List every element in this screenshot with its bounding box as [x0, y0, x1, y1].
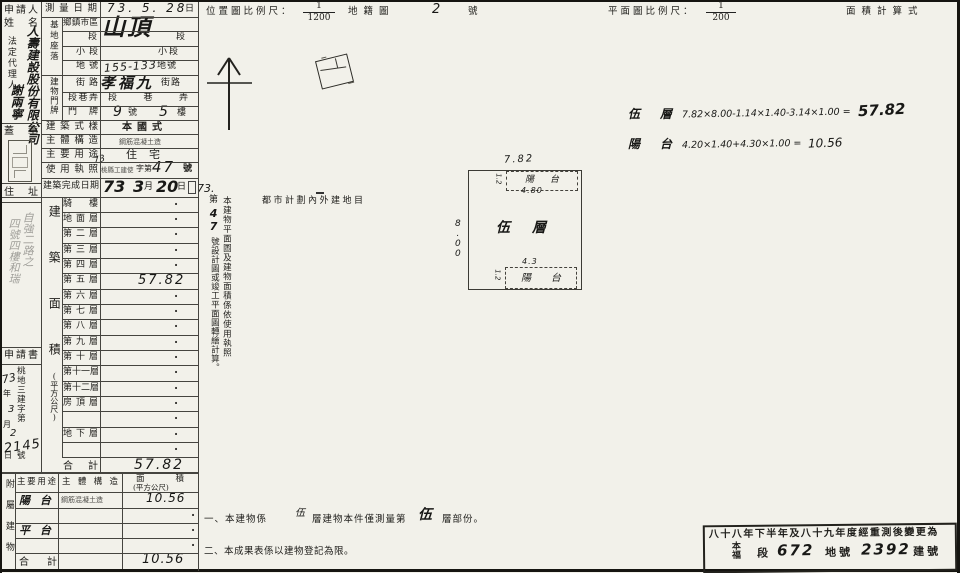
license-mid: 字第	[136, 165, 152, 174]
section-label: 段	[88, 33, 97, 43]
floor-row-value: ·	[100, 260, 224, 272]
lane-label: 段巷弄	[68, 94, 98, 104]
plan-balcony-bottom-label: 陽台	[521, 273, 561, 284]
map-note-col-right: 本建物平面圖及建物面積係依使用執照	[221, 196, 230, 398]
door-label: 門牌	[68, 108, 98, 118]
floor-row-value: ·	[100, 398, 224, 410]
grid-line	[62, 381, 198, 382]
grid-line	[62, 457, 198, 458]
floor-row-value: ·	[100, 383, 224, 395]
attached-total-area: 10.56	[142, 553, 184, 567]
floor-row-value: ·	[100, 321, 224, 333]
plan-balcony-bottom: 陽台	[505, 267, 577, 289]
door-number-unit: 號	[128, 109, 137, 119]
note1-pre: 一、本建物係	[204, 515, 267, 525]
section-value-handwriting: 山頂	[102, 16, 152, 41]
applicant-company-handwriting: 人壽建設股份有限公司	[25, 25, 38, 129]
grid-line	[15, 553, 198, 554]
location-scale-label: 位置圖比例尺：	[206, 7, 294, 17]
grid-line	[41, 134, 198, 135]
stamp-line1: 八十八年下半年及八十九年度經重測後變更為	[709, 527, 939, 540]
stamp-building-unit: 建號	[913, 546, 941, 558]
plan-balcony-top-height: 1.2	[494, 173, 502, 184]
grid-line	[58, 473, 59, 569]
attached-row-usage: 陽台	[19, 495, 51, 507]
attached-side-label: 附屬建物	[3, 479, 13, 569]
grid-line	[62, 411, 198, 412]
grid-line	[62, 335, 198, 336]
zoning-mark	[316, 192, 324, 194]
grid-line	[2, 364, 41, 365]
resurvey-stamp-box: 八十八年下半年及八十九年度經重測後變更為 本福 段 672 地號 2392 建號	[703, 523, 957, 573]
lot-suffix: 地號	[157, 62, 177, 72]
survey-date-suffix: 日	[185, 5, 194, 15]
floor-row-label: 第二層	[63, 230, 98, 240]
license-suffix: 號	[183, 165, 192, 175]
grid-line	[62, 243, 198, 244]
cadastral-map-no-suffix: 號	[468, 7, 478, 17]
attached-total-label: 合計	[19, 557, 57, 568]
grid-line	[198, 2, 199, 571]
subsection-label: 小段	[76, 48, 98, 58]
grid-line	[41, 75, 198, 76]
application-month-hand: 3	[8, 404, 14, 415]
agent-label: 法定代理人	[5, 36, 15, 91]
grid-line	[62, 442, 198, 443]
plan-scale-denominator: 200	[706, 13, 736, 23]
zoning-text: 都市計劃內外建地目	[262, 197, 366, 207]
grid-line	[62, 289, 198, 290]
grid-line	[15, 492, 198, 493]
floor-row-value: ·	[100, 214, 224, 226]
grid-line	[62, 197, 63, 457]
floor-row-label: 地面層	[63, 215, 98, 225]
address-handwriting-col1: 自強二路之	[21, 212, 33, 332]
grid-line	[2, 202, 41, 203]
attached-col-structure: 主體構造	[62, 478, 118, 487]
attached-row-structure: 鋼筋混凝土造	[61, 497, 103, 505]
grid-line	[15, 523, 198, 524]
calc-line1-formula: 7.82×8.00-1.14×1.40-3.14×1.00 =	[682, 108, 851, 121]
grid-line	[41, 2, 42, 473]
seal-imprint	[8, 140, 32, 182]
floor-row-label: 第五層	[63, 276, 98, 286]
floor-row-value-fifth: 57.82	[138, 274, 185, 288]
usage-label: 主要用途	[46, 150, 98, 160]
grid-line	[122, 473, 123, 569]
completion-day-hand: 20	[156, 178, 178, 196]
stamp-section-unit: 段	[757, 548, 768, 560]
floor-row-label: 第三層	[63, 246, 98, 256]
completion-year-hand: 73	[103, 178, 125, 196]
floor-area-group-label: 建築面積	[47, 205, 60, 370]
stamp-section-name: 本福	[729, 541, 739, 569]
completion-month-hand: 3	[133, 178, 144, 196]
calc-line1-label: 伍層	[628, 108, 672, 121]
grid-line	[62, 17, 63, 120]
license-office-small: 桃縣工建使	[101, 167, 134, 174]
floor-row-value: ·	[100, 199, 224, 211]
township-label: 鄉鎮市區	[63, 19, 98, 28]
parcel-sketch	[315, 53, 354, 89]
lane-value: 段巷弄	[108, 94, 188, 104]
grid-line	[41, 120, 198, 121]
survey-result-sheet: 申請人 姓名 法定代理人 人壽建設股份有限公司 謝兩寧 蓋章 住址 自強二路之 …	[0, 0, 960, 573]
grid-line	[62, 212, 198, 213]
location-scale-fraction: 1 1200	[303, 2, 335, 23]
floor-row-label: 第十一層	[63, 368, 98, 378]
grid-line	[62, 227, 198, 228]
seal-label: 蓋章	[4, 126, 38, 137]
plan-main-label: 伍層	[496, 221, 546, 236]
floor-row-value: ·	[100, 429, 224, 441]
note1-mid: 層建物本件僅測量第	[312, 515, 407, 525]
completion-day-box	[188, 181, 196, 194]
plan-balcony-top-width: 4.80	[521, 187, 543, 196]
structure-label: 主體構造	[46, 136, 98, 146]
floor-row-value: ·	[100, 352, 224, 364]
floor-row-value: ·	[100, 306, 224, 318]
map-note-hand: 73.	[197, 183, 215, 195]
note1-hand1: 伍	[295, 508, 305, 519]
stamp-lot-no: 2392	[861, 541, 911, 558]
floor-row-label: 第九層	[63, 338, 98, 348]
survey-date-value: 73. 5. 28	[107, 2, 187, 15]
plan-dim-top: 7.82	[504, 153, 535, 166]
grid-line	[2, 123, 41, 124]
floor-row-value: ·	[100, 337, 224, 349]
floor-row-label: 第十二層	[63, 384, 98, 394]
border-left	[0, 0, 2, 573]
attached-row-usage: 平台	[19, 525, 51, 537]
grid-line	[62, 273, 198, 274]
floor-row-value: ·	[100, 413, 224, 425]
door-number-hand: 9	[113, 105, 122, 120]
application-day-hand: 2	[10, 428, 16, 439]
style-value: 本國式	[122, 122, 162, 133]
structure-value: 鋼筋混凝土造	[119, 139, 161, 147]
floor-row-label: 第六層	[63, 292, 98, 302]
calc-line2-formula: 4.20×1.40+4.30×1.00 =	[682, 139, 802, 152]
plan-scale-numerator: 1	[706, 2, 736, 13]
application-label: 申請書	[4, 350, 38, 361]
plan-balcony-bottom-height: 1.2	[493, 269, 501, 280]
grid-line	[2, 197, 198, 198]
grid-line	[15, 473, 16, 569]
floor-row-value: ·	[100, 444, 224, 456]
calc-line2-label: 陽台	[628, 138, 672, 151]
door-floor-hand: 5	[159, 105, 168, 120]
floor-row-label: 房頂層	[63, 399, 98, 409]
plan-dim-left: 8.00	[452, 219, 462, 253]
survey-date-label: 測量日期	[45, 4, 97, 14]
floor-row-label: 第四層	[63, 261, 98, 271]
grid-line	[62, 396, 198, 397]
calc-line1-result: 57.82	[858, 101, 906, 120]
license-label: 使用執照	[46, 165, 98, 175]
floor-row-value: ·	[100, 245, 224, 257]
grid-line	[41, 162, 198, 163]
note1-post: 層部份。	[442, 515, 484, 525]
grid-line	[62, 319, 198, 320]
plan-scale-fraction: 1 200	[706, 2, 736, 23]
grid-line	[62, 304, 198, 305]
note1-hand2: 伍	[418, 508, 432, 523]
map-note-no-hand: 47	[207, 207, 219, 235]
floor-row-label: 第八層	[63, 322, 98, 332]
street-suffix: 街路	[161, 79, 181, 89]
stamp-lot-unit: 地號	[825, 547, 853, 559]
grid-line	[62, 60, 198, 61]
grid-line	[62, 46, 198, 47]
grid-line	[15, 538, 198, 539]
grid-line	[2, 347, 41, 348]
section-suffix: 段	[176, 33, 185, 43]
floor-row-label: 地下層	[63, 430, 98, 440]
grid-line	[41, 148, 198, 149]
grid-line	[62, 350, 198, 351]
cadastral-map-label: 地籍圖	[348, 7, 395, 17]
north-arrow-icon	[205, 50, 255, 136]
applicant-label-line1: 申請人	[4, 5, 38, 16]
completion-month-unit: 月	[144, 183, 153, 193]
lot-label: 地號	[76, 62, 98, 72]
attached-col-usage: 主要用途	[17, 478, 56, 487]
grid-line	[62, 31, 198, 32]
attached-row-area: 10.56	[146, 492, 185, 505]
location-scale-numerator: 1	[303, 2, 335, 13]
floor-total-label: 合計	[63, 461, 98, 472]
floor-row-label: 第七層	[63, 307, 98, 317]
grid-line	[2, 183, 41, 184]
application-year-unit: 年	[3, 390, 11, 399]
grid-line	[100, 2, 101, 473]
grid-line	[2, 472, 198, 474]
attached-row-dot: ·	[122, 525, 230, 537]
floor-row-value: ·	[100, 229, 224, 241]
calc-line2-result: 10.56	[808, 136, 843, 150]
note2: 二、本成果表係以建物登記為限。	[204, 547, 354, 557]
grid-line	[62, 258, 198, 259]
door-floor-unit: 樓	[177, 109, 186, 119]
location-scale-denominator: 1200	[303, 13, 335, 23]
application-no-hand: 2145	[3, 437, 42, 456]
floor-row-label: 第十層	[63, 353, 98, 363]
floor-area-group-unit: (平方公尺)	[49, 372, 58, 454]
site-group-label: 基地座落	[48, 20, 57, 74]
agent-name-handwriting: 謝兩寧	[9, 84, 22, 120]
grid-line	[41, 17, 198, 18]
street-value: 孝福九	[100, 75, 154, 92]
completion-day-unit: 日	[177, 183, 186, 193]
plan-balcony-bottom-width: 4.3	[522, 258, 538, 267]
floor-row-value: ·	[100, 367, 224, 379]
application-doc-prefix: 桃地三建字第	[15, 366, 24, 450]
plan-balcony-top-label: 陽台	[525, 176, 559, 186]
subsection-suffix: 小段	[158, 48, 180, 58]
floor-row-label: 騎樓	[63, 200, 98, 210]
grid-line	[62, 365, 198, 366]
map-note-post: 號設計圖或竣工平面圖轉繪計算。	[209, 237, 218, 397]
plan-scale-label: 平面圖比例尺：	[608, 7, 696, 17]
cadastral-map-no: 2	[432, 3, 440, 17]
floor-row-value: ·	[100, 291, 224, 303]
grid-line	[62, 92, 198, 93]
grid-line	[62, 427, 198, 428]
street-label: 街路	[76, 79, 98, 89]
grid-line	[62, 106, 198, 107]
address-handwriting-col2: 四號四樓和瑞	[7, 218, 19, 348]
area-calc-label: 面積計算式	[846, 7, 924, 17]
style-label: 建築式樣	[46, 122, 98, 132]
grid-line	[41, 178, 198, 179]
door-group-label: 建物門牌	[48, 77, 57, 121]
map-note-pre: 第	[209, 196, 218, 206]
grid-line	[15, 508, 198, 509]
lot-value: 155-133	[104, 59, 158, 75]
completion-label: 建築完成日期	[43, 182, 99, 192]
stamp-section-no: 672	[777, 542, 814, 559]
